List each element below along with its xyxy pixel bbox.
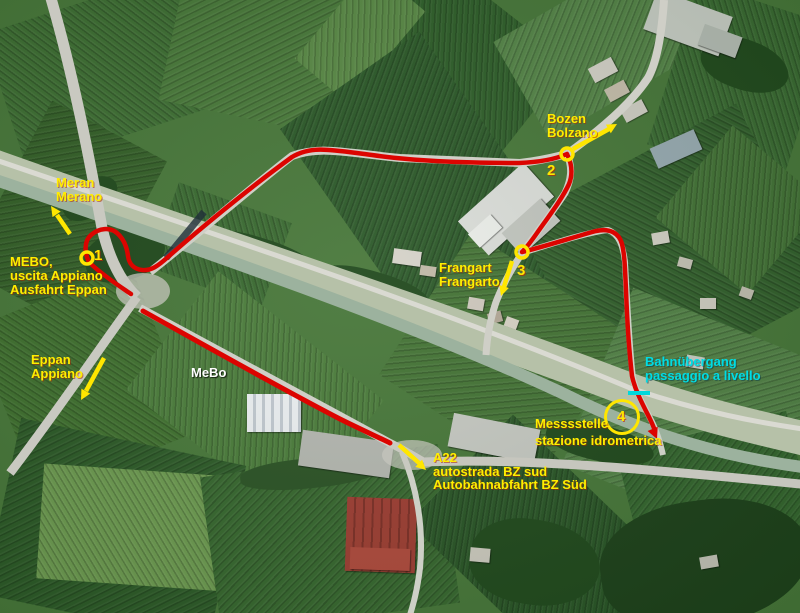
label-line: Appiano	[31, 367, 83, 381]
label-line: Bolzano	[547, 126, 598, 140]
label-line: Ausfahrt Eppan	[10, 283, 107, 297]
marker-number-3: 3	[517, 262, 525, 279]
label-line: Frangarto	[439, 275, 500, 289]
label-line: Merano	[56, 190, 102, 204]
label-line: Frangart	[439, 261, 500, 275]
label-line: stazione idrometrica	[535, 432, 661, 449]
label-bozen: Bozen Bolzano	[547, 112, 598, 140]
eppan-road	[10, 297, 137, 473]
marker-number-1: 1	[94, 247, 102, 264]
label-line: Bozen	[547, 112, 598, 126]
route-overlay	[0, 0, 800, 613]
label-line: Meran	[56, 176, 102, 190]
label-mebo-road: MeBo	[191, 366, 226, 380]
label-railway-crossing: Bahnübergang passaggio a livello	[645, 355, 761, 383]
label-line: Messsstelle	[535, 415, 661, 432]
marker-number-4: 4	[617, 408, 625, 425]
label-mebo-exit: MEBO, uscita Appiano Ausfahrt Eppan	[10, 255, 107, 297]
satellite-map: Meran Merano MEBO, uscita Appiano Ausfah…	[0, 0, 800, 613]
south-road	[402, 452, 421, 613]
marker-number-2: 2	[547, 162, 555, 179]
label-station: Messsstelle stazione idrometrica	[535, 415, 661, 449]
label-a22: A22 autostrada BZ sud Autobahnabfahrt BZ…	[433, 451, 587, 492]
label-line: uscita Appiano	[10, 269, 107, 283]
label-line: MEBO,	[10, 255, 107, 269]
label-frangart: Frangart Frangarto	[439, 261, 500, 289]
label-line: Eppan	[31, 353, 83, 367]
valley-corridor	[0, 165, 800, 440]
label-meran: Meran Merano	[56, 176, 102, 204]
label-line: Bahnübergang	[645, 355, 761, 369]
label-line: A22	[433, 451, 587, 465]
label-line: autostrada BZ sud	[433, 465, 587, 479]
label-line: Autobahnabfahrt BZ Süd	[433, 478, 587, 492]
route-a22-spur	[143, 311, 390, 443]
label-eppan: Eppan Appiano	[31, 353, 83, 381]
label-line: passaggio a livello	[645, 369, 761, 383]
